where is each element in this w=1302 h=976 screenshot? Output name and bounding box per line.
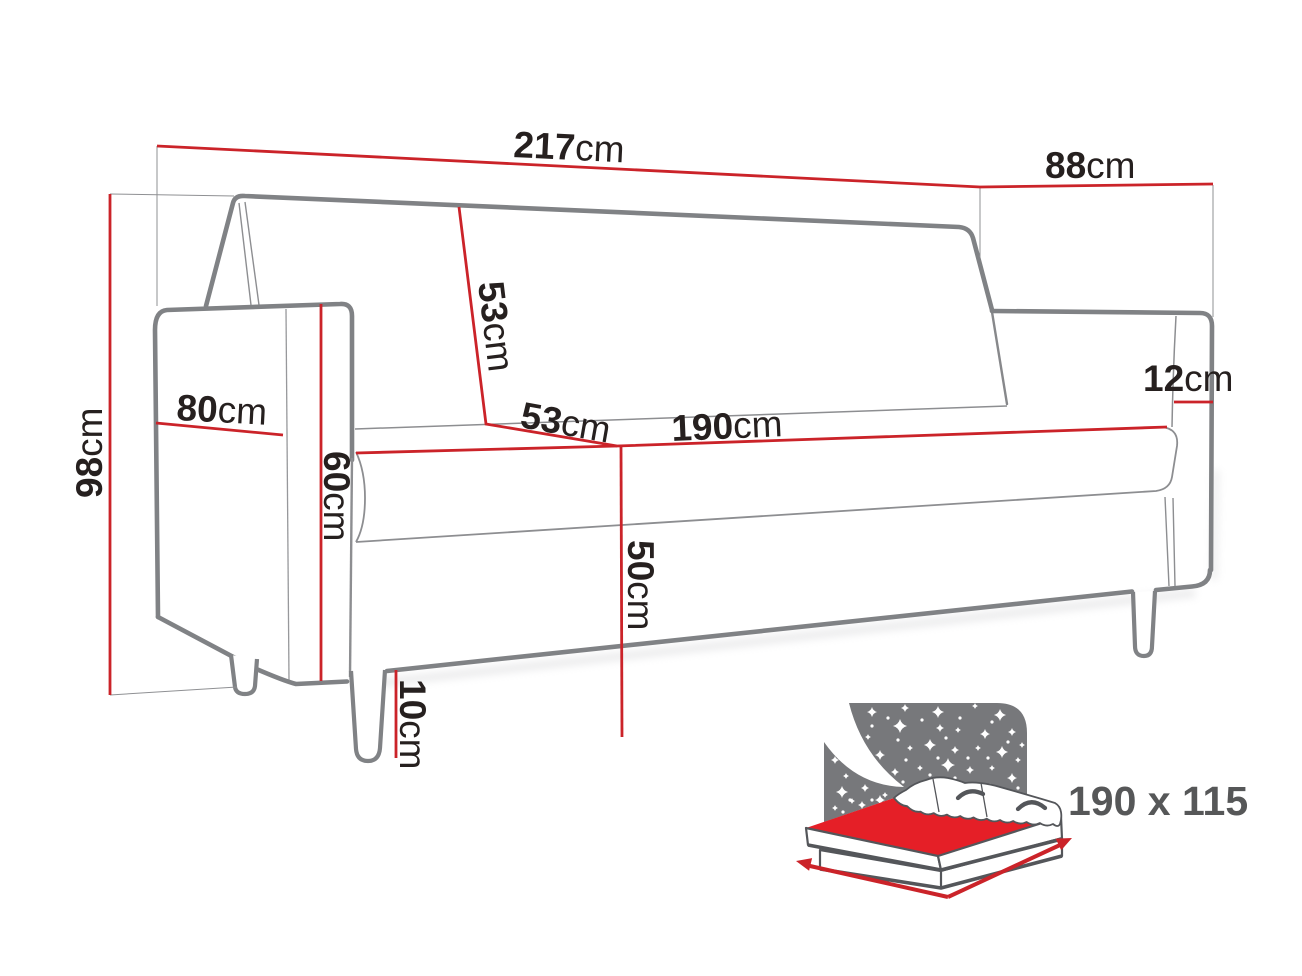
svg-text:80cm: 80cm bbox=[176, 387, 269, 433]
svg-text:60cm: 60cm bbox=[316, 451, 357, 541]
svg-text:190cm: 190cm bbox=[671, 403, 784, 449]
svg-text:217cm: 217cm bbox=[513, 124, 626, 170]
svg-text:53cm: 53cm bbox=[518, 395, 614, 451]
svg-text:10cm: 10cm bbox=[392, 679, 433, 769]
svg-text:88cm: 88cm bbox=[1045, 145, 1135, 186]
svg-text:12cm: 12cm bbox=[1143, 358, 1233, 399]
svg-text:98cm: 98cm bbox=[69, 408, 110, 498]
svg-text:50cm: 50cm bbox=[620, 540, 661, 630]
svg-text:190 x 115: 190 x 115 bbox=[1068, 778, 1248, 824]
